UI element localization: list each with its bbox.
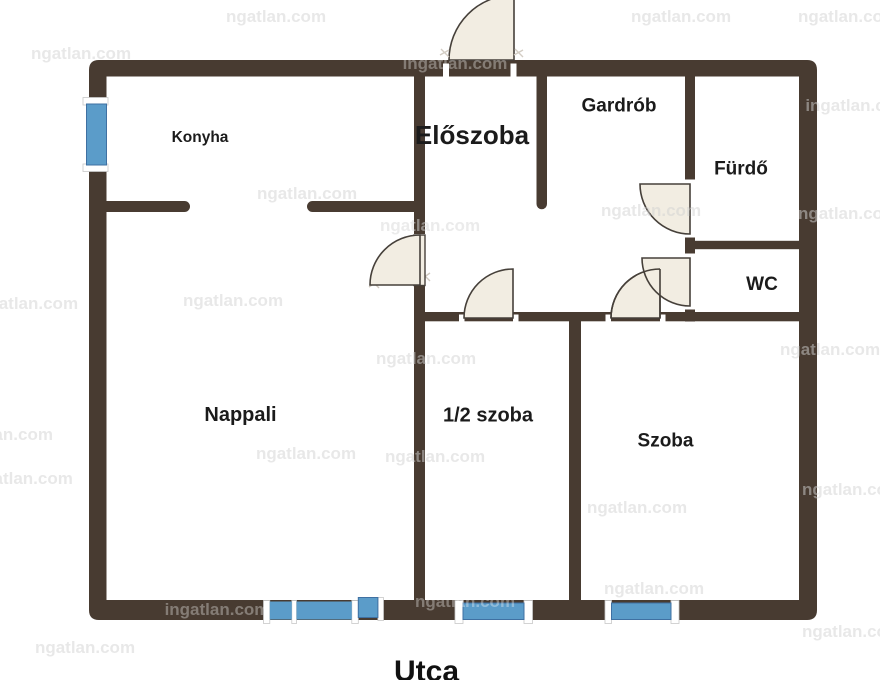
svg-text:ingatlan.c: ingatlan.c	[805, 96, 880, 115]
svg-text:Fürdő: Fürdő	[714, 159, 768, 180]
svg-text:ngatlan.com: ngatlan.com	[256, 444, 356, 463]
svg-text:Előszoba: Előszoba	[415, 120, 530, 150]
svg-text:ngatlan.com: ngatlan.com	[257, 184, 357, 203]
svg-text:ngatlan.com: ngatlan.com	[380, 216, 480, 235]
svg-text:WC: WC	[746, 274, 778, 295]
svg-text:ngatlan.com: ngatlan.com	[780, 340, 880, 359]
svg-text:ngatlan.com: ngatlan.com	[35, 638, 135, 657]
svg-text:ngatlan.com: ngatlan.com	[415, 592, 515, 611]
svg-text:ingatlan.com: ingatlan.com	[165, 600, 270, 619]
svg-text:ingatlan.com: ingatlan.com	[403, 54, 508, 73]
svg-text:Nappali: Nappali	[204, 404, 276, 426]
svg-text:gatlan.com: gatlan.com	[0, 469, 73, 488]
svg-text:ngatlan.com: ngatlan.com	[376, 349, 476, 368]
svg-text:ngatlan.com: ngatlan.com	[183, 291, 283, 310]
svg-text:ngatlan.com: ngatlan.com	[601, 201, 701, 220]
svg-text:ngatlan.com: ngatlan.com	[802, 622, 880, 641]
svg-text:ngatlan.com: ngatlan.com	[0, 294, 78, 313]
svg-text:Gardrób: Gardrób	[582, 96, 657, 117]
svg-text:ngatlan.com: ngatlan.com	[31, 44, 131, 63]
svg-text:Utca: Utca	[394, 655, 459, 680]
svg-text:ngatlan.com: ngatlan.com	[802, 480, 880, 499]
svg-text:Szoba: Szoba	[638, 430, 694, 451]
svg-text:ngatlan.com: ngatlan.com	[798, 204, 880, 223]
svg-text:1/2 szoba: 1/2 szoba	[443, 404, 534, 426]
svg-text:tlan.com: tlan.com	[0, 425, 53, 444]
svg-text:ngatlan.com: ngatlan.com	[226, 7, 326, 26]
svg-text:ngatlan.com: ngatlan.com	[798, 7, 880, 26]
svg-text:ngatlan.com: ngatlan.com	[631, 7, 731, 26]
svg-text:Konyha: Konyha	[172, 129, 229, 146]
svg-text:ngatlan.com: ngatlan.com	[385, 447, 485, 466]
svg-text:ngatlan.com: ngatlan.com	[604, 579, 704, 598]
svg-text:ngatlan.com: ngatlan.com	[587, 498, 687, 517]
